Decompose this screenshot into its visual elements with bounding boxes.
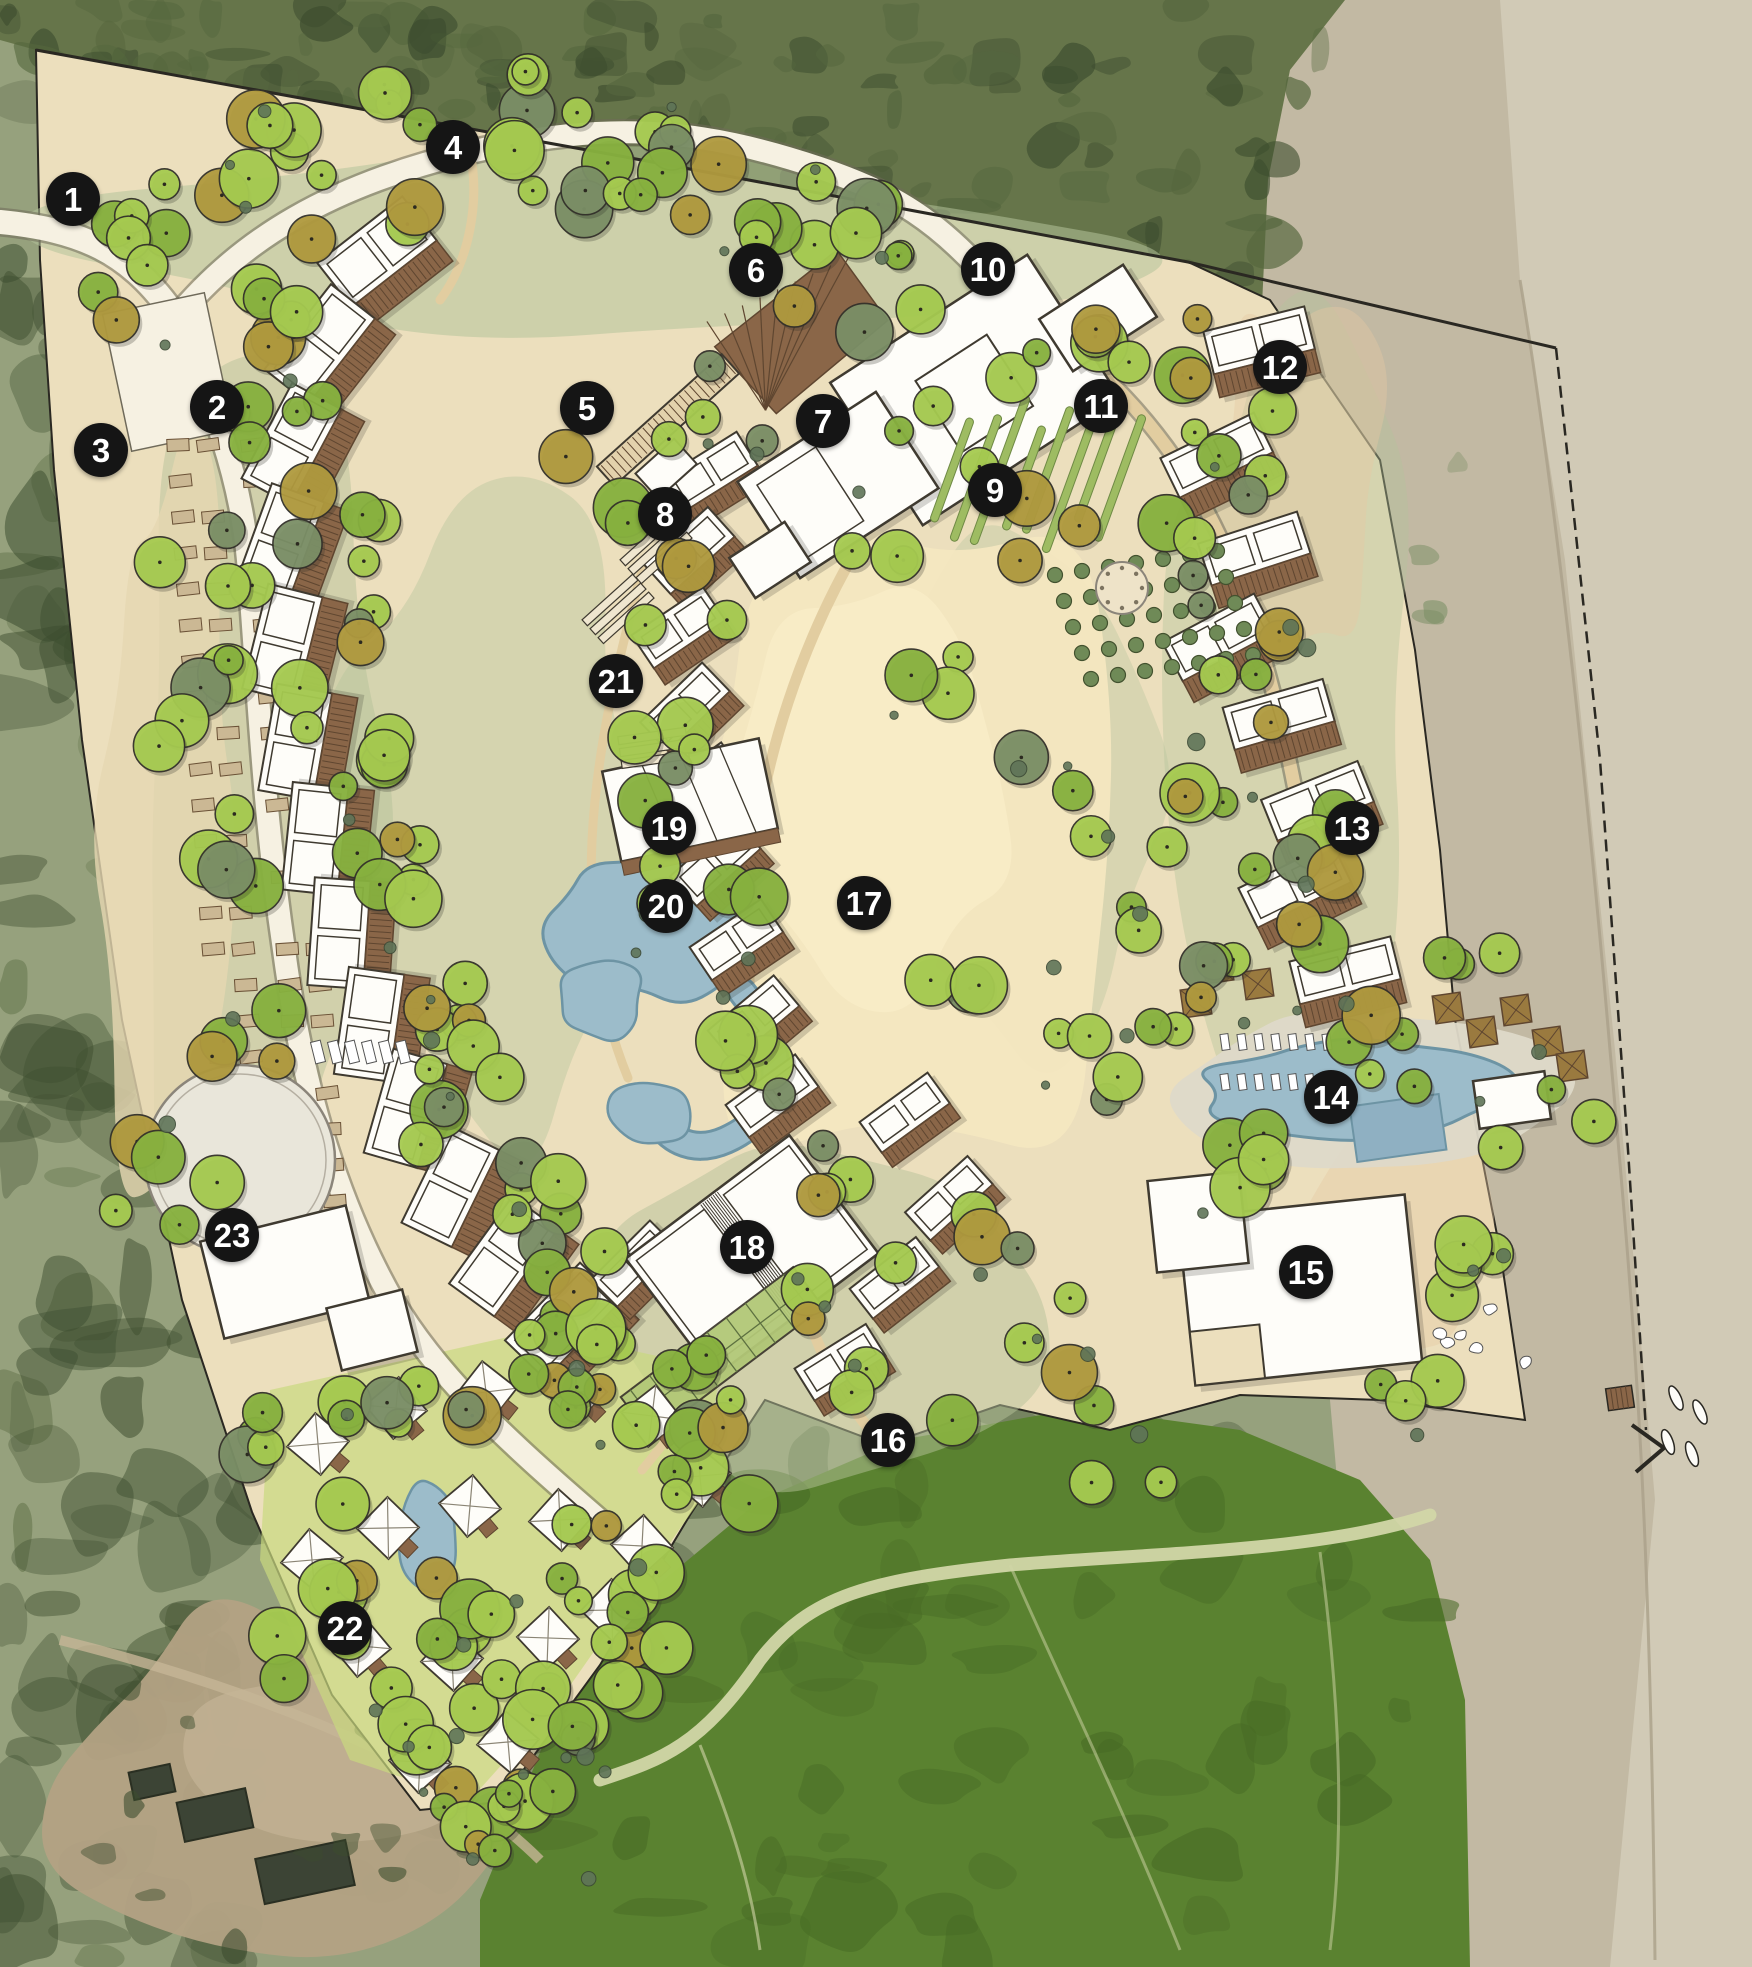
map-key-number: 11 — [1084, 390, 1119, 423]
map-key-number: 9 — [986, 474, 1004, 507]
markers-layer: 1234567891011121314151617181920212223 — [0, 0, 1752, 1967]
map-key-marker-5: 5 — [560, 381, 614, 435]
map-key-number: 20 — [648, 890, 685, 923]
map-key-number: 14 — [1313, 1081, 1350, 1114]
map-key-marker-6: 6 — [729, 243, 783, 297]
map-key-number: 17 — [846, 887, 883, 920]
map-key-marker-14: 14 — [1304, 1070, 1358, 1124]
map-key-marker-21: 21 — [589, 654, 643, 708]
map-key-number: 1 — [64, 183, 82, 216]
map-key-number: 13 — [1334, 812, 1371, 845]
map-key-number: 4 — [444, 131, 462, 164]
map-key-number: 19 — [651, 812, 688, 845]
map-key-marker-12: 12 — [1253, 340, 1307, 394]
map-key-number: 10 — [970, 253, 1007, 286]
map-key-number: 8 — [656, 498, 674, 531]
map-key-marker-20: 20 — [639, 879, 693, 933]
map-key-marker-7: 7 — [796, 394, 850, 448]
map-key-marker-3: 3 — [74, 423, 128, 477]
map-key-marker-8: 8 — [638, 487, 692, 541]
map-key-marker-22: 22 — [318, 1601, 372, 1655]
map-key-number: 18 — [729, 1231, 766, 1264]
map-key-marker-1: 1 — [46, 172, 100, 226]
map-key-number: 21 — [598, 665, 635, 698]
map-key-marker-15: 15 — [1279, 1245, 1333, 1299]
map-key-number: 6 — [747, 254, 765, 287]
map-key-marker-9: 9 — [968, 463, 1022, 517]
map-key-marker-11: 11 — [1074, 379, 1128, 433]
map-key-number: 22 — [327, 1612, 364, 1645]
map-key-marker-17: 17 — [837, 876, 891, 930]
map-key-marker-18: 18 — [720, 1220, 774, 1274]
map-key-number: 15 — [1288, 1256, 1325, 1289]
map-key-number: 23 — [214, 1219, 251, 1252]
resort-master-plan: 1234567891011121314151617181920212223 — [0, 0, 1752, 1967]
map-key-number: 12 — [1262, 351, 1299, 384]
map-key-marker-10: 10 — [961, 242, 1015, 296]
map-key-marker-19: 19 — [642, 801, 696, 855]
map-key-marker-13: 13 — [1325, 801, 1379, 855]
map-key-number: 3 — [92, 434, 110, 467]
map-key-marker-2: 2 — [190, 380, 244, 434]
map-key-marker-4: 4 — [426, 120, 480, 174]
map-key-marker-16: 16 — [861, 1413, 915, 1467]
map-key-marker-23: 23 — [205, 1208, 259, 1262]
map-key-number: 7 — [814, 405, 832, 438]
map-key-number: 16 — [870, 1424, 907, 1457]
map-key-number: 5 — [578, 392, 596, 425]
map-key-number: 2 — [208, 391, 226, 424]
